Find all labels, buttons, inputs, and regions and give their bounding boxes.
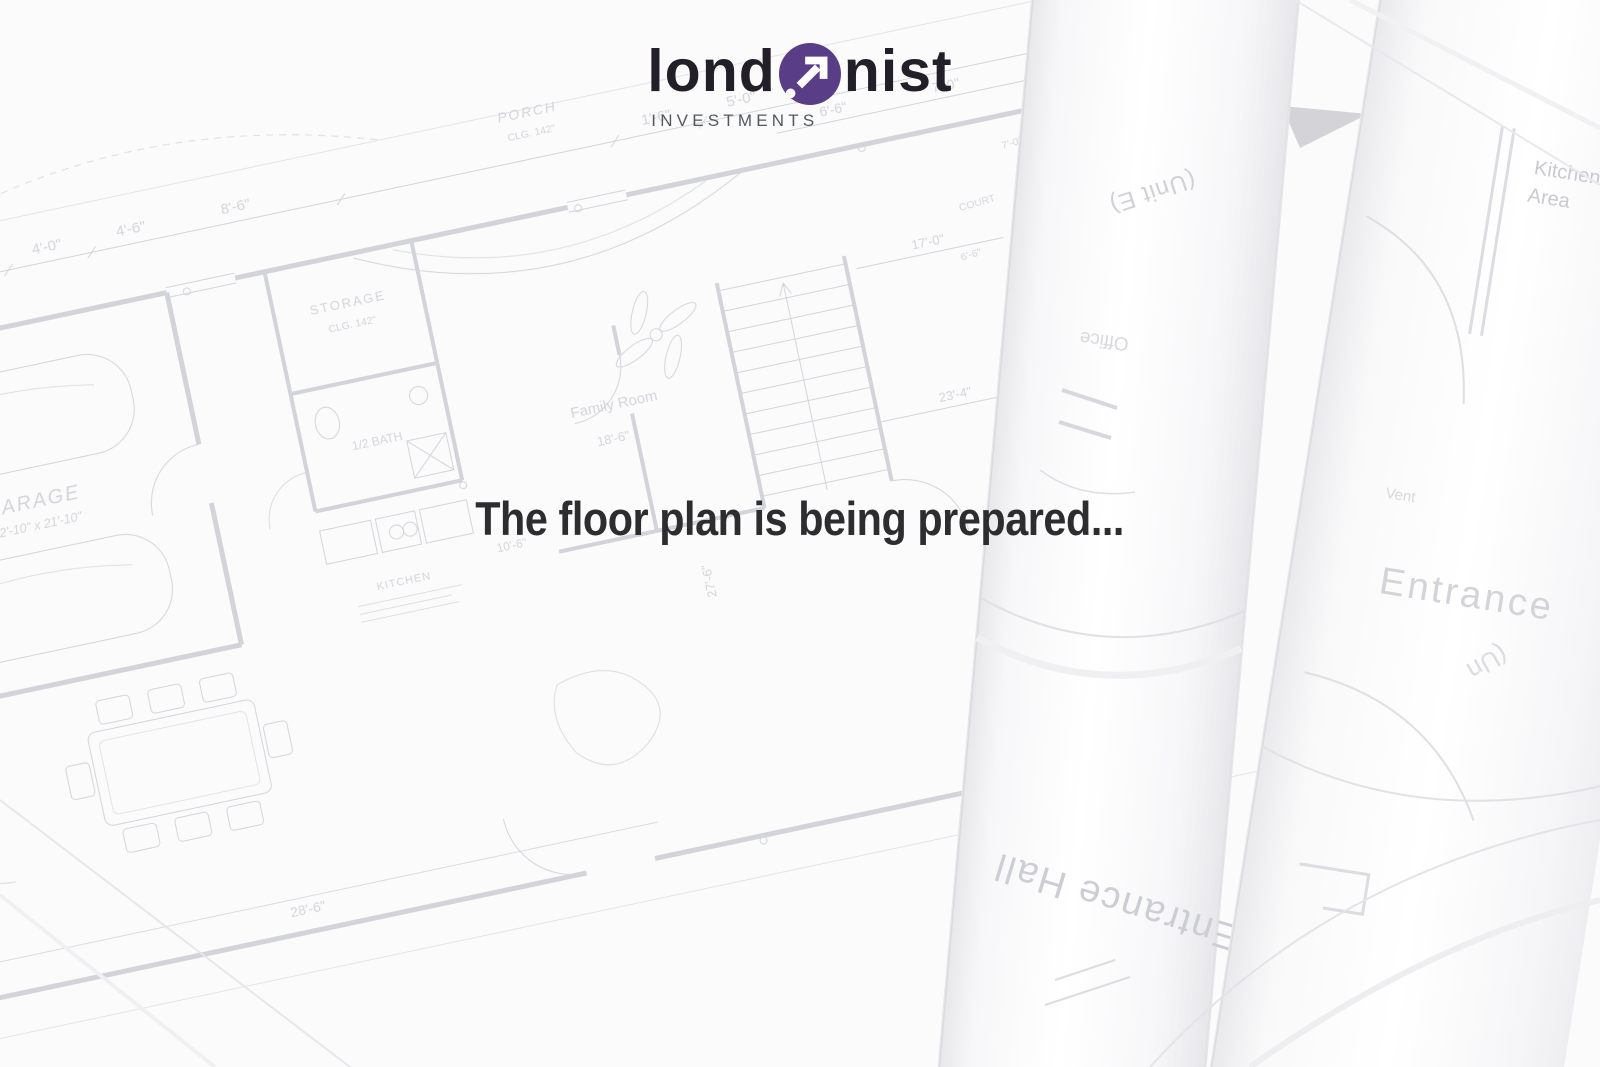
dim-27-6: 27'-6" bbox=[698, 563, 720, 599]
brand-block: lond nist INVESTMENTS bbox=[0, 40, 1600, 131]
logo: lond nist bbox=[647, 40, 952, 102]
dining-table-symbol bbox=[53, 663, 306, 862]
logo-text-right: nist bbox=[844, 42, 953, 101]
status-message: The floor plan is being prepared... bbox=[0, 492, 1600, 546]
dim-4-0: 4'-0" bbox=[30, 236, 63, 259]
plan-label-ceiling-2: CLG. 142" bbox=[327, 314, 377, 336]
dim-18-6: 18'-6" bbox=[596, 428, 632, 450]
logo-text-left: lond bbox=[647, 42, 776, 101]
dim-23-4: 23'-4" bbox=[937, 384, 973, 406]
brand-subtitle: INVESTMENTS bbox=[651, 111, 818, 131]
status-message-text: The floor plan is being prepared... bbox=[476, 492, 1125, 546]
logo-badge bbox=[779, 43, 841, 105]
plan-label-family-room: Family Room bbox=[569, 387, 659, 422]
dim-4-6: 4'-6" bbox=[114, 218, 147, 241]
dim-28-6: 28'-6" bbox=[289, 897, 327, 920]
dim-6-6b: 6'-6" bbox=[959, 246, 983, 263]
plan-label-storage: STORAGE bbox=[308, 287, 387, 318]
page: 23'-6" 5'-0" 4'-0" 4'-6" 8'-6" 1'-6" 5'-… bbox=[0, 0, 1600, 1067]
plan-label-kitchen: KITCHEN bbox=[376, 570, 433, 593]
plan-label-court: COURT bbox=[958, 192, 998, 214]
arrow-up-right-icon bbox=[779, 43, 841, 105]
dim-17-0: 17'-0" bbox=[910, 231, 946, 253]
dim-8-6: 8'-6" bbox=[219, 196, 252, 219]
plan-label-half-bath: 1/2 BATH bbox=[351, 429, 404, 453]
